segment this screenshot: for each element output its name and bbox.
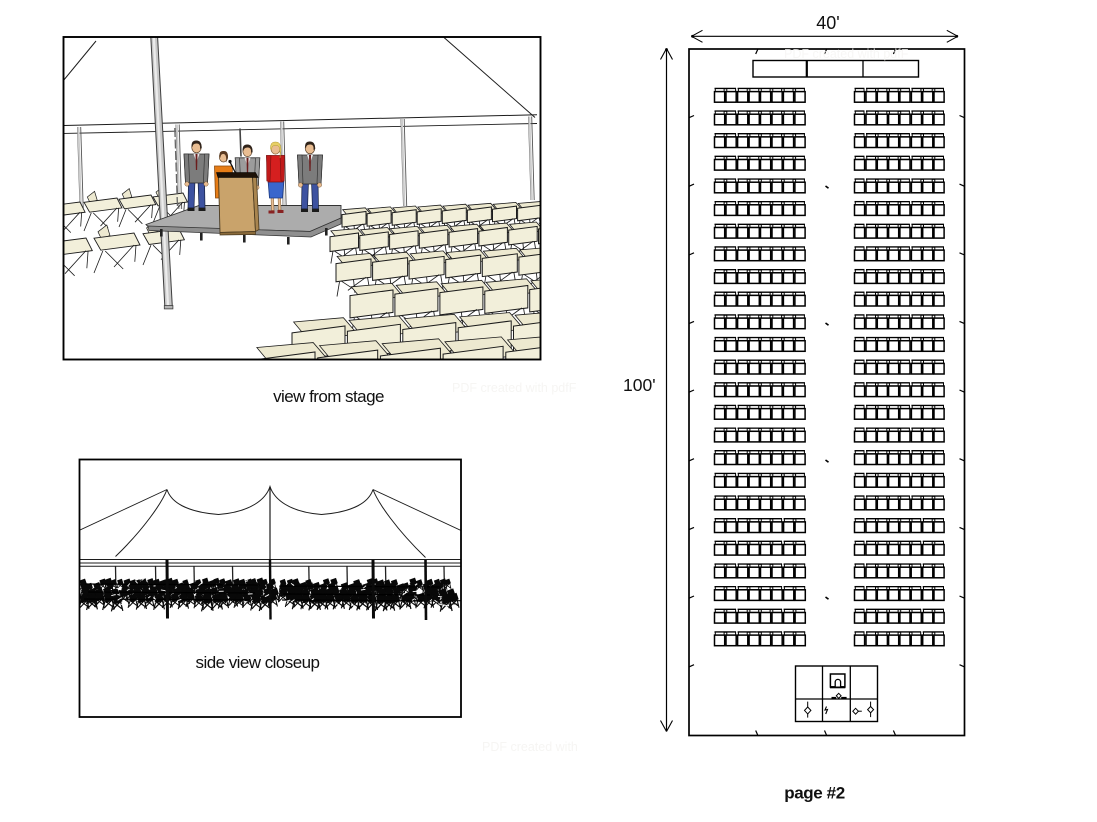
svg-text:page #2: page #2 <box>784 784 845 803</box>
svg-text:40': 40' <box>816 13 839 33</box>
svg-text:100': 100' <box>623 375 656 395</box>
svg-text:PDF created with pdfF: PDF created with pdfF <box>452 381 577 395</box>
svg-text:PDF created with pdfF: PDF created with pdfF <box>784 47 909 61</box>
svg-text:view from stage: view from stage <box>273 387 384 406</box>
svg-text:side view closeup: side view closeup <box>196 653 320 672</box>
svg-text:PDF created with: PDF created with <box>482 740 578 754</box>
